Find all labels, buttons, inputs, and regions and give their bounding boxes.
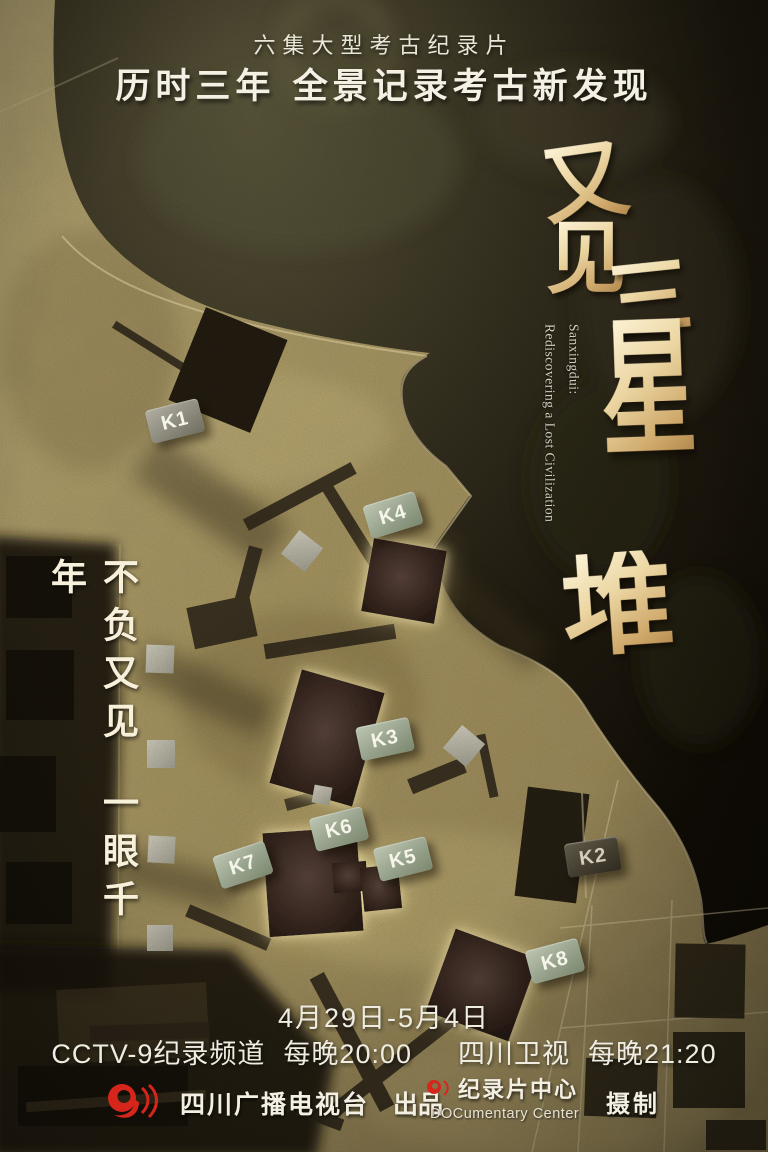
english-subtitle-line2: Rediscovering a Lost Civilization [538,324,562,594]
broadcast-dates: 4月29日-5月4日 [0,996,768,1035]
producer-credit: 四川广播电视台 出品 [106,1082,443,1124]
doc-center-logo-icon [426,1079,452,1097]
series-tagline: 六集大型考古纪录片 [0,28,768,60]
english-subtitle: Sanxingdui: Rediscovering a Lost Civiliz… [538,324,585,594]
channel-sichuan: 四川卫视 [458,1039,570,1069]
left-slogan: 不负又见一眼千年 [40,558,144,948]
channel-cctv9-time: 每晚20:00 [283,1039,412,1069]
studio-name: 纪录片中心 [458,1072,578,1104]
channel-cctv9: CCTV-9纪录频道 [51,1039,265,1069]
channel-sichuan-time: 每晚21:20 [588,1039,717,1069]
documentary-poster: 六集大型考古纪录片 历时三年 全景记录考古新发现 又 见 三 星 堆 Sanxi… [0,0,768,1152]
sichuan-tv-logo-icon [106,1082,168,1124]
studio-role: 摄制 [606,1084,660,1119]
left-slogan-line1: 不负又见 [97,558,139,750]
title-char-4: 星 [598,316,699,461]
main-slogan: 历时三年 全景记录考古新发现 [0,58,768,109]
broadcast-channels: CCTV-9纪录频道每晚20:00四川卫视每晚21:20 [0,1032,768,1071]
producer-name: 四川广播电视台 [180,1085,369,1121]
english-subtitle-line1: Sanxingdui: [562,324,586,594]
